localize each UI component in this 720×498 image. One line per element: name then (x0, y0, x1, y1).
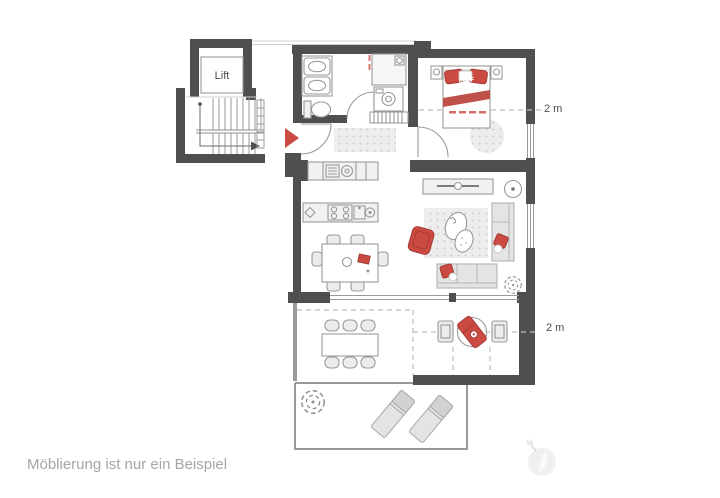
armchair-right (492, 321, 507, 342)
dining-set (312, 235, 388, 291)
washbasin-left (304, 58, 330, 75)
shower (372, 54, 406, 85)
plan-caption: Möblierung ist nur ein Beispiel (27, 456, 227, 473)
stairs (186, 97, 264, 154)
staircase-block: Lift (176, 39, 265, 163)
terrace (302, 390, 454, 443)
roof-joint-lines (252, 41, 417, 45)
wall (190, 39, 252, 48)
wall (190, 39, 199, 97)
outdoor-table (322, 334, 378, 356)
chair (361, 320, 375, 331)
cooking-island (303, 203, 378, 222)
chair (325, 320, 339, 331)
washing-machine (374, 87, 403, 111)
wall (176, 88, 185, 163)
sofa-right (492, 203, 514, 261)
living-window (526, 204, 535, 248)
toilet (304, 101, 331, 118)
plant-icon (302, 391, 325, 414)
balcony-side-parapet (293, 303, 297, 381)
north-compass-watermark: N (526, 437, 556, 476)
dining-table (322, 244, 378, 282)
balcony (322, 315, 507, 368)
entrance-arrow (285, 128, 299, 148)
doormat (334, 128, 396, 152)
wall (246, 88, 256, 100)
plant-icon (505, 277, 522, 294)
floor-plan-page: Lift (0, 0, 720, 498)
north-letter: N (526, 437, 535, 448)
red-placemat (358, 254, 370, 264)
living-room (407, 179, 521, 293)
sun-lounger-2 (409, 395, 454, 443)
floor-lamp (505, 181, 522, 198)
chair (312, 252, 322, 266)
double-bed: LOFF (443, 66, 490, 128)
entrance-door (301, 124, 331, 154)
nightstand-left (431, 66, 442, 79)
sideboard-tv (423, 179, 493, 194)
armchair-left (438, 321, 453, 342)
chair (325, 357, 339, 368)
wall-counter (308, 162, 378, 180)
lift-label: Lift (215, 70, 230, 82)
white-pillow (494, 245, 502, 253)
chair (343, 357, 357, 368)
bedroom: LOFF (418, 66, 504, 157)
bedroom-window (526, 124, 535, 158)
white-pillow (449, 273, 457, 281)
chair (361, 357, 375, 368)
dimension-tick (369, 64, 371, 70)
washbasin-right (304, 77, 330, 94)
door-mullion (449, 293, 456, 302)
wall (176, 154, 265, 163)
chair (343, 320, 357, 331)
stair-direction-arrow (251, 142, 260, 151)
dimension-tick (369, 55, 371, 61)
chair (378, 252, 388, 266)
wardrobe (370, 112, 408, 123)
bedroom-height-label: 2 m (544, 103, 562, 115)
balcony-height-label: 2 m (546, 322, 564, 334)
bathroom (302, 54, 406, 119)
sun-lounger-1 (371, 390, 416, 438)
kitchen (303, 162, 388, 291)
sofa-bottom (437, 264, 497, 288)
floor-plan-canvas: Lift (0, 0, 720, 498)
nightstand-right (491, 66, 502, 79)
balcony-sliding-door (330, 293, 519, 302)
bedroom-door (418, 127, 448, 157)
